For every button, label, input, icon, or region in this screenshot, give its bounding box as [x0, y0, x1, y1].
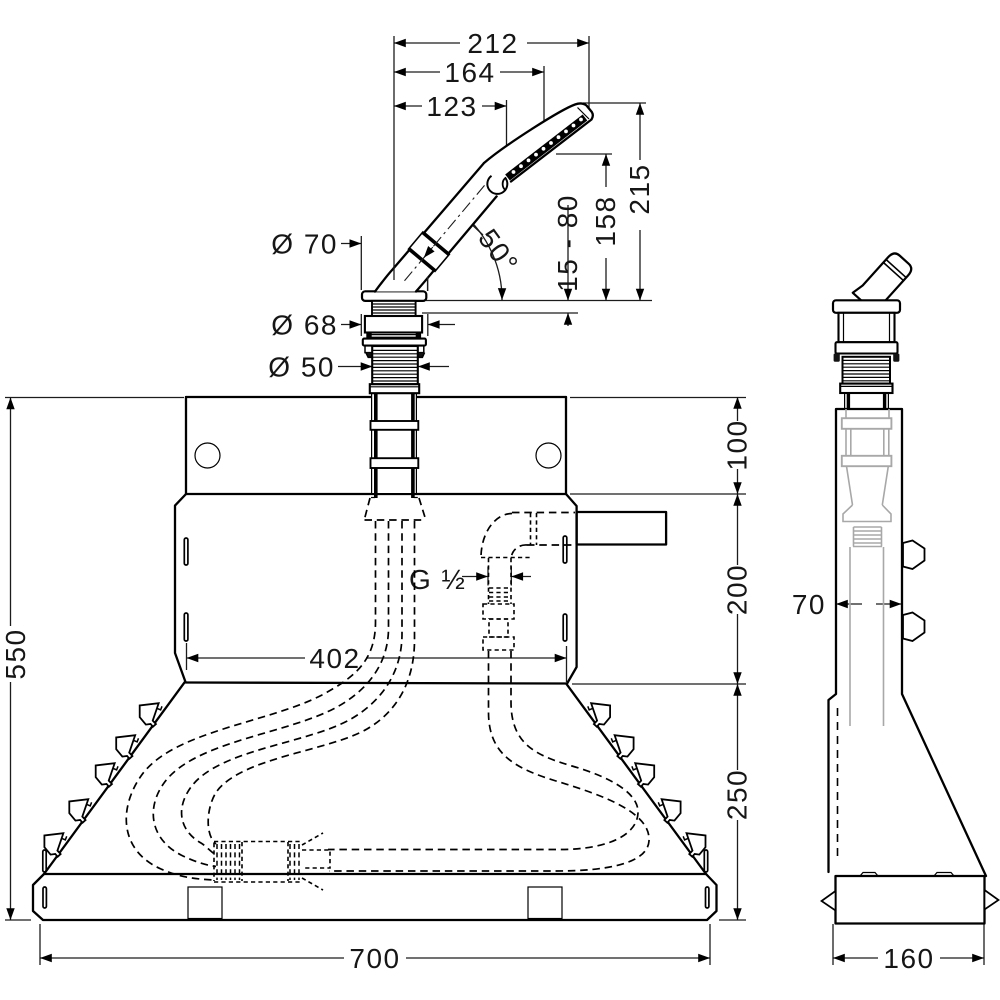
svg-text:250: 250	[722, 769, 753, 820]
svg-text:200: 200	[722, 564, 753, 615]
svg-text:G ½: G ½	[409, 564, 466, 595]
svg-text:158: 158	[590, 195, 621, 246]
svg-text:70: 70	[792, 589, 826, 620]
svg-text:700: 700	[349, 943, 400, 974]
svg-text:164: 164	[444, 57, 495, 88]
svg-text:215: 215	[624, 163, 655, 214]
svg-text:100: 100	[722, 419, 753, 470]
svg-text:Ø 68: Ø 68	[271, 310, 338, 341]
svg-text:Ø 50: Ø 50	[268, 352, 335, 383]
svg-text:160: 160	[883, 943, 934, 974]
svg-text:123: 123	[426, 91, 477, 122]
svg-text:212: 212	[467, 28, 518, 59]
svg-text:Ø 70: Ø 70	[271, 229, 338, 260]
svg-text:15 - 80: 15 - 80	[552, 194, 583, 292]
svg-text:402: 402	[309, 643, 360, 674]
svg-text:550: 550	[0, 628, 31, 679]
